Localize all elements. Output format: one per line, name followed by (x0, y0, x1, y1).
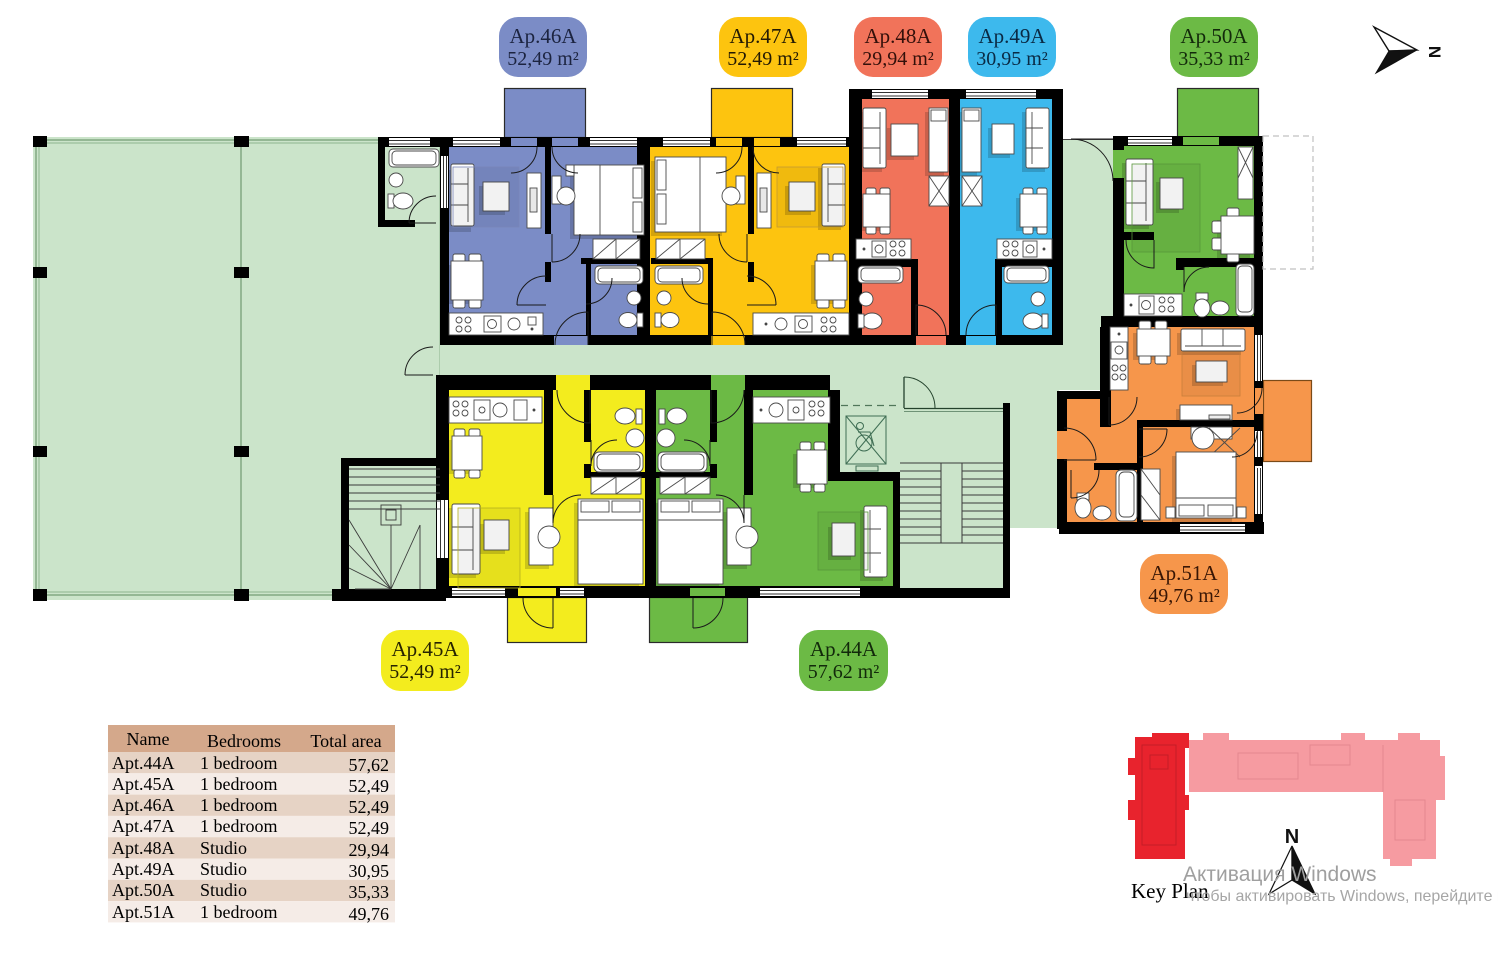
svg-text:Apt.49A: Apt.49A (112, 859, 175, 879)
svg-text:52,49 m²: 52,49 m² (727, 48, 799, 70)
svg-text:57,62: 57,62 (349, 755, 390, 775)
svg-text:30,95: 30,95 (349, 861, 390, 881)
svg-text:Studio: Studio (200, 880, 247, 900)
svg-text:29,94: 29,94 (349, 840, 390, 860)
svg-text:Apt.48A: Apt.48A (112, 838, 175, 858)
svg-text:1 bedroom: 1 bedroom (200, 753, 277, 773)
svg-text:Apt.51A: Apt.51A (112, 902, 175, 922)
svg-text:1 bedroom: 1 bedroom (200, 774, 277, 794)
svg-text:52,49: 52,49 (349, 797, 390, 817)
svg-text:Bedrooms: Bedrooms (207, 731, 281, 751)
svg-text:Ap.51A: Ap.51A (1150, 561, 1218, 585)
svg-text:52,49: 52,49 (349, 776, 390, 796)
svg-text:57,62 m²: 57,62 m² (808, 661, 880, 683)
svg-text:Apt.50A: Apt.50A (112, 880, 175, 900)
svg-text:49,76 m²: 49,76 m² (1148, 585, 1220, 607)
svg-text:N: N (1425, 46, 1444, 58)
svg-text:Ap.44A: Ap.44A (810, 637, 878, 661)
svg-text:Apt.45A: Apt.45A (112, 774, 175, 794)
svg-text:Ap.49A: Ap.49A (978, 24, 1046, 48)
svg-text:35,33: 35,33 (349, 882, 390, 902)
svg-text:Ap.46A: Ap.46A (509, 24, 577, 48)
svg-text:52,49: 52,49 (349, 818, 390, 838)
svg-text:чтобы активировать Windows, пе: чтобы активировать Windows, перейдите в … (1186, 888, 1498, 905)
svg-text:29,94 m²: 29,94 m² (862, 48, 934, 70)
svg-text:Name: Name (127, 729, 170, 749)
svg-text:1 bedroom: 1 bedroom (200, 816, 277, 836)
svg-text:30,95 m²: 30,95 m² (976, 48, 1048, 70)
svg-text:Ap.48A: Ap.48A (864, 24, 932, 48)
svg-text:Studio: Studio (200, 859, 247, 879)
svg-text:Apt.47A: Apt.47A (112, 816, 175, 836)
svg-text:Apt.46A: Apt.46A (112, 795, 175, 815)
svg-text:49,76: 49,76 (349, 904, 390, 924)
svg-text:N: N (1285, 826, 1299, 848)
svg-text:Studio: Studio (200, 838, 247, 858)
svg-text:Активация Windows: Активация Windows (1183, 863, 1377, 886)
svg-text:Ap.47A: Ap.47A (729, 24, 797, 48)
svg-text:35,33 m²: 35,33 m² (1178, 48, 1250, 70)
svg-text:Ap.45A: Ap.45A (391, 637, 459, 661)
svg-text:Total area: Total area (310, 731, 381, 751)
svg-text:52,49 m²: 52,49 m² (389, 661, 461, 683)
svg-text:Apt.44A: Apt.44A (112, 753, 175, 773)
svg-text:52,49 m²: 52,49 m² (507, 48, 579, 70)
svg-text:1 bedroom: 1 bedroom (200, 902, 277, 922)
svg-text:Ap.50A: Ap.50A (1180, 24, 1248, 48)
svg-text:1 bedroom: 1 bedroom (200, 795, 277, 815)
